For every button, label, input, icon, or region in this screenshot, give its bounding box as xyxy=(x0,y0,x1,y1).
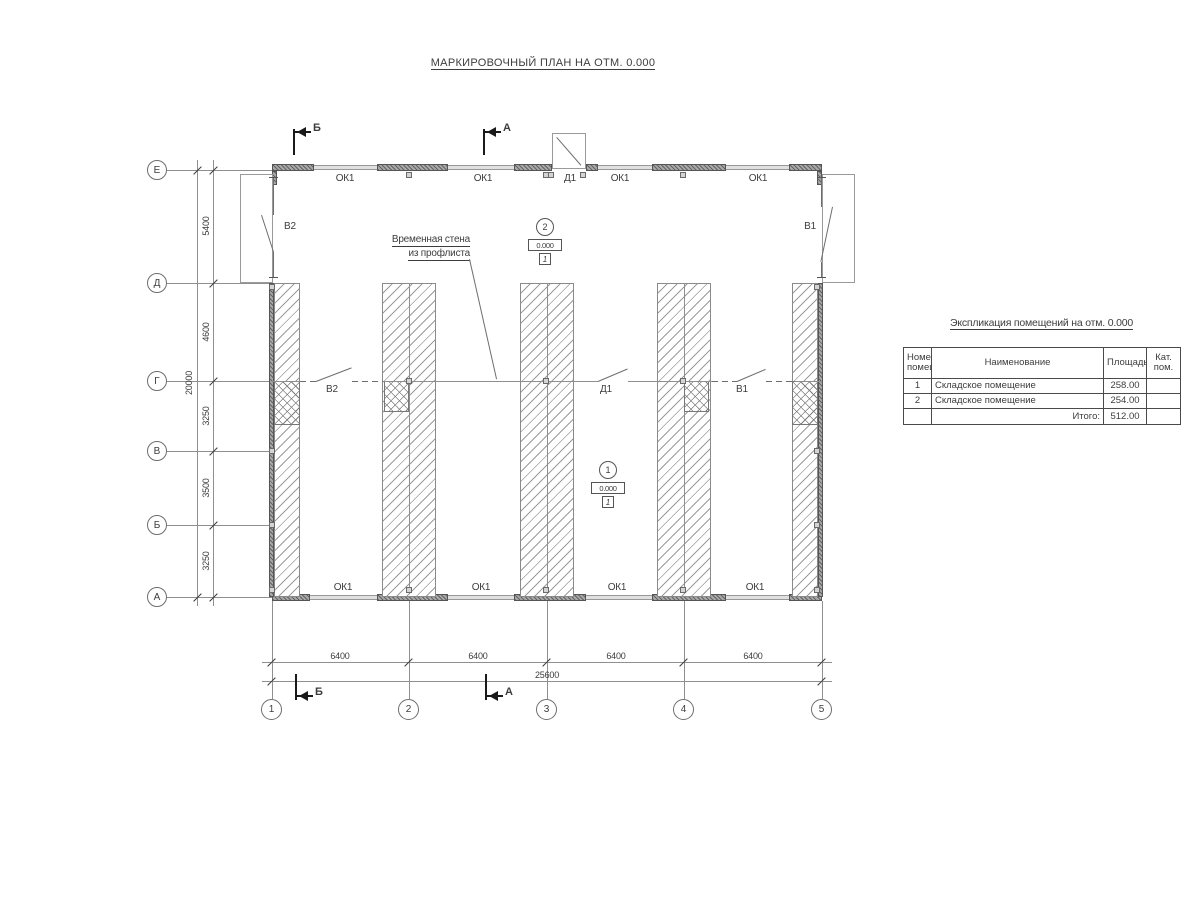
room-marker-1-floor-type: 1 xyxy=(602,496,614,508)
room-elevation: 0.000 xyxy=(599,484,616,493)
column-marker xyxy=(269,522,275,528)
temp-wall-note-text: Временная стена xyxy=(392,235,470,247)
floor-type: 1 xyxy=(543,255,547,264)
dim-value-3250: 3250 xyxy=(201,396,211,436)
grid-bubble-label: 4 xyxy=(681,704,687,715)
column-marker xyxy=(543,172,549,178)
partition-line-dashed xyxy=(300,381,316,382)
axis-line-4 xyxy=(684,283,685,594)
table-title: Экспликация помещений на отм. 0.000 xyxy=(903,318,1180,330)
section-label-a-bottom: А xyxy=(505,687,513,698)
page-title-text: МАРКИРОВОЧНЫЙ ПЛАН НА ОТМ. 0.000 xyxy=(431,58,656,70)
partition-line-dashed xyxy=(712,381,737,382)
room-marker-2-elevation: 0.000 xyxy=(528,239,562,251)
drawing-canvas: МАРКИРОВОЧНЫЙ ПЛАН НА ОТМ. 0.000 Е Д Г В… xyxy=(0,0,1200,900)
axis-extension-1 xyxy=(272,601,273,699)
dim-line-left-total xyxy=(197,160,198,606)
dim-value-3500: 3500 xyxy=(201,468,211,508)
column-marker xyxy=(269,587,275,593)
infill-left-wall xyxy=(274,381,300,425)
infill-axis-4 xyxy=(684,381,709,412)
cell-room-number: 1 xyxy=(904,379,932,394)
grid-line-B xyxy=(167,525,272,526)
grid-bubble-4: 4 xyxy=(673,699,694,720)
temp-wall-note-line1: Временная стена xyxy=(378,235,470,247)
table-total-row: Итого: 512.00 xyxy=(904,409,1181,425)
grid-bubble-label: Б xyxy=(154,520,161,531)
dim-value-6400-2: 6400 xyxy=(458,651,498,661)
section-arrow-icon xyxy=(487,127,496,137)
grid-bubble-label: 2 xyxy=(406,704,412,715)
door-jamb-marker xyxy=(580,172,586,178)
dim-line-left-segments xyxy=(213,160,214,606)
gate-v2-leaf-outline xyxy=(240,174,273,283)
section-label-b-top: Б xyxy=(313,123,321,134)
column-marker xyxy=(814,587,820,593)
page-title: МАРКИРОВОЧНЫЙ ПЛАН НА ОТМ. 0.000 xyxy=(418,58,668,70)
grid-line-E xyxy=(167,170,272,171)
grid-bubble-D: Д xyxy=(147,273,167,293)
column-marker xyxy=(680,378,686,384)
cell-total-label: Итого: xyxy=(932,409,1104,425)
cell-total-value: 512.00 xyxy=(1104,409,1147,425)
gate-v1-cap xyxy=(817,177,826,178)
dim-line-bottom-total xyxy=(262,681,832,682)
dim-value-6400-4: 6400 xyxy=(733,651,773,661)
column-marker xyxy=(814,284,820,290)
table-header-category: Кат. пом. xyxy=(1147,348,1181,379)
gate-v1-cap xyxy=(817,277,826,278)
grid-bubble-G: Г xyxy=(147,371,167,391)
room-marker-2-number: 2 xyxy=(536,218,554,236)
axis-line-2 xyxy=(409,283,410,594)
gate-label-v1-mid: В1 xyxy=(736,385,760,395)
grid-bubble-E: Е xyxy=(147,160,167,180)
column-marker xyxy=(680,587,686,593)
right-wall-pilaster xyxy=(792,283,818,597)
cell-room-name: Складское помещение xyxy=(932,394,1104,409)
infill-axis-2 xyxy=(384,381,409,412)
grid-line-V xyxy=(167,451,272,452)
column-marker xyxy=(543,378,549,384)
gate-label-v2-mid: В2 xyxy=(326,385,350,395)
grid-bubble-1: 1 xyxy=(261,699,282,720)
cell-room-area: 258.00 xyxy=(1104,379,1147,394)
dim-value-5400: 5400 xyxy=(201,206,211,246)
door-d1-mid-swing xyxy=(598,369,628,382)
gate-v1-line xyxy=(821,262,822,278)
gate-label-v1: В1 xyxy=(788,222,816,232)
window-label-ok1: ОК1 xyxy=(741,583,769,593)
column-marker xyxy=(680,172,686,178)
room-marker-2-floor-type: 1 xyxy=(539,253,551,265)
cell-empty xyxy=(904,409,932,425)
left-wall-pilaster xyxy=(274,283,300,597)
column-marker xyxy=(269,284,275,290)
axis-extension-5 xyxy=(822,601,823,699)
grid-bubble-label: 5 xyxy=(819,704,825,715)
window-label-ok1: ОК1 xyxy=(603,583,631,593)
cell-room-category xyxy=(1147,394,1181,409)
note-leader-line xyxy=(469,259,497,379)
grid-bubble-label: Г xyxy=(154,376,159,387)
top-wall-segment xyxy=(377,164,448,171)
column-marker xyxy=(543,587,549,593)
section-arrow-icon xyxy=(489,691,498,701)
gate-v2-cap xyxy=(269,277,278,278)
grid-bubble-label: А xyxy=(154,592,161,603)
room-number: 2 xyxy=(542,222,547,232)
top-wall-segment xyxy=(272,164,314,171)
explication-table: Номер помещ. Наименование Площадь Кат. п… xyxy=(903,347,1181,425)
dim-value-6400-1: 6400 xyxy=(320,651,360,661)
partition-line-dashed xyxy=(352,381,383,382)
column-marker xyxy=(814,522,820,528)
grid-bubble-label: 1 xyxy=(269,704,275,715)
infill-right-wall xyxy=(792,381,818,425)
column-marker xyxy=(406,587,412,593)
top-wall-segment xyxy=(586,164,598,171)
room-elevation: 0.000 xyxy=(536,241,553,250)
grid-bubble-3: 3 xyxy=(536,699,557,720)
grid-line-G xyxy=(167,381,272,382)
temp-wall-note-line2: из профлиста xyxy=(378,249,470,261)
gate-v1-line xyxy=(821,178,822,207)
grid-bubble-A: А xyxy=(147,587,167,607)
room-number: 1 xyxy=(605,465,610,475)
top-wall-segment xyxy=(652,164,726,171)
cell-room-area: 254.00 xyxy=(1104,394,1147,409)
grid-bubble-label: Д xyxy=(154,278,161,289)
dim-value-20000: 20000 xyxy=(184,363,194,403)
room-marker-1-number: 1 xyxy=(599,461,617,479)
gate-v2-line xyxy=(273,252,274,278)
gate-v2-cap xyxy=(269,177,278,178)
column-marker xyxy=(406,378,412,384)
table-header-number: Номер помещ. xyxy=(904,348,932,379)
column-marker xyxy=(814,448,820,454)
window-label-ok1: ОК1 xyxy=(744,174,772,184)
partition-line-dashed xyxy=(766,381,795,382)
grid-bubble-label: Е xyxy=(154,165,161,176)
grid-bubble-label: 3 xyxy=(544,704,550,715)
dim-value-6400-3: 6400 xyxy=(596,651,636,661)
top-wall-segment xyxy=(789,164,822,171)
cell-room-name: Складское помещение xyxy=(932,379,1104,394)
window-label-ok1: ОК1 xyxy=(469,174,497,184)
grid-bubble-V: В xyxy=(147,441,167,461)
gate-v2-swing xyxy=(316,367,352,382)
floor-type: 1 xyxy=(606,498,610,507)
cell-room-number: 2 xyxy=(904,394,932,409)
partition-line xyxy=(383,381,598,382)
section-arrow-icon xyxy=(299,691,308,701)
axis-extension-2 xyxy=(409,601,410,699)
section-label-a-top: А xyxy=(503,123,511,134)
table-header-name: Наименование xyxy=(932,348,1104,379)
axis-extension-4 xyxy=(684,601,685,699)
grid-line-D xyxy=(167,283,272,284)
table-header-area: Площадь xyxy=(1104,348,1147,379)
door-label-d1-mid: Д1 xyxy=(600,385,624,395)
dim-value-25600: 25600 xyxy=(527,670,567,680)
table-row: 1 Складское помещение 258.00 xyxy=(904,379,1181,394)
grid-bubble-5: 5 xyxy=(811,699,832,720)
section-arrow-icon xyxy=(297,127,306,137)
gate-v2-line xyxy=(273,178,274,215)
table-row: 2 Складское помещение 254.00 xyxy=(904,394,1181,409)
cell-empty xyxy=(1147,409,1181,425)
window-label-ok1: ОК1 xyxy=(331,174,359,184)
grid-bubble-2: 2 xyxy=(398,699,419,720)
partition-line xyxy=(628,381,712,382)
window-label-ok1: ОК1 xyxy=(329,583,357,593)
gate-v1-swing xyxy=(737,369,766,382)
top-wall-segment xyxy=(514,164,552,171)
window-label-ok1: ОК1 xyxy=(606,174,634,184)
column-marker xyxy=(406,172,412,178)
grid-bubble-B: Б xyxy=(147,515,167,535)
axis-line-3 xyxy=(547,283,548,594)
axis-extension-3 xyxy=(547,601,548,699)
table-title-text: Экспликация помещений на отм. 0.000 xyxy=(950,318,1133,330)
dim-value-4600: 4600 xyxy=(201,312,211,352)
right-wall xyxy=(818,283,823,597)
room-marker-1-elevation: 0.000 xyxy=(591,482,625,494)
partition-line xyxy=(272,381,300,382)
column-marker xyxy=(269,448,275,454)
grid-bubble-label: В xyxy=(154,446,161,457)
section-label-b-bottom: Б xyxy=(315,687,323,698)
gate-label-v2: В2 xyxy=(284,222,308,232)
grid-line-A xyxy=(167,597,272,598)
partition-line xyxy=(795,381,822,382)
dim-value-3250b: 3250 xyxy=(201,541,211,581)
cell-room-category xyxy=(1147,379,1181,394)
window-label-ok1: ОК1 xyxy=(467,583,495,593)
temp-wall-note-text: из профлиста xyxy=(408,249,470,261)
